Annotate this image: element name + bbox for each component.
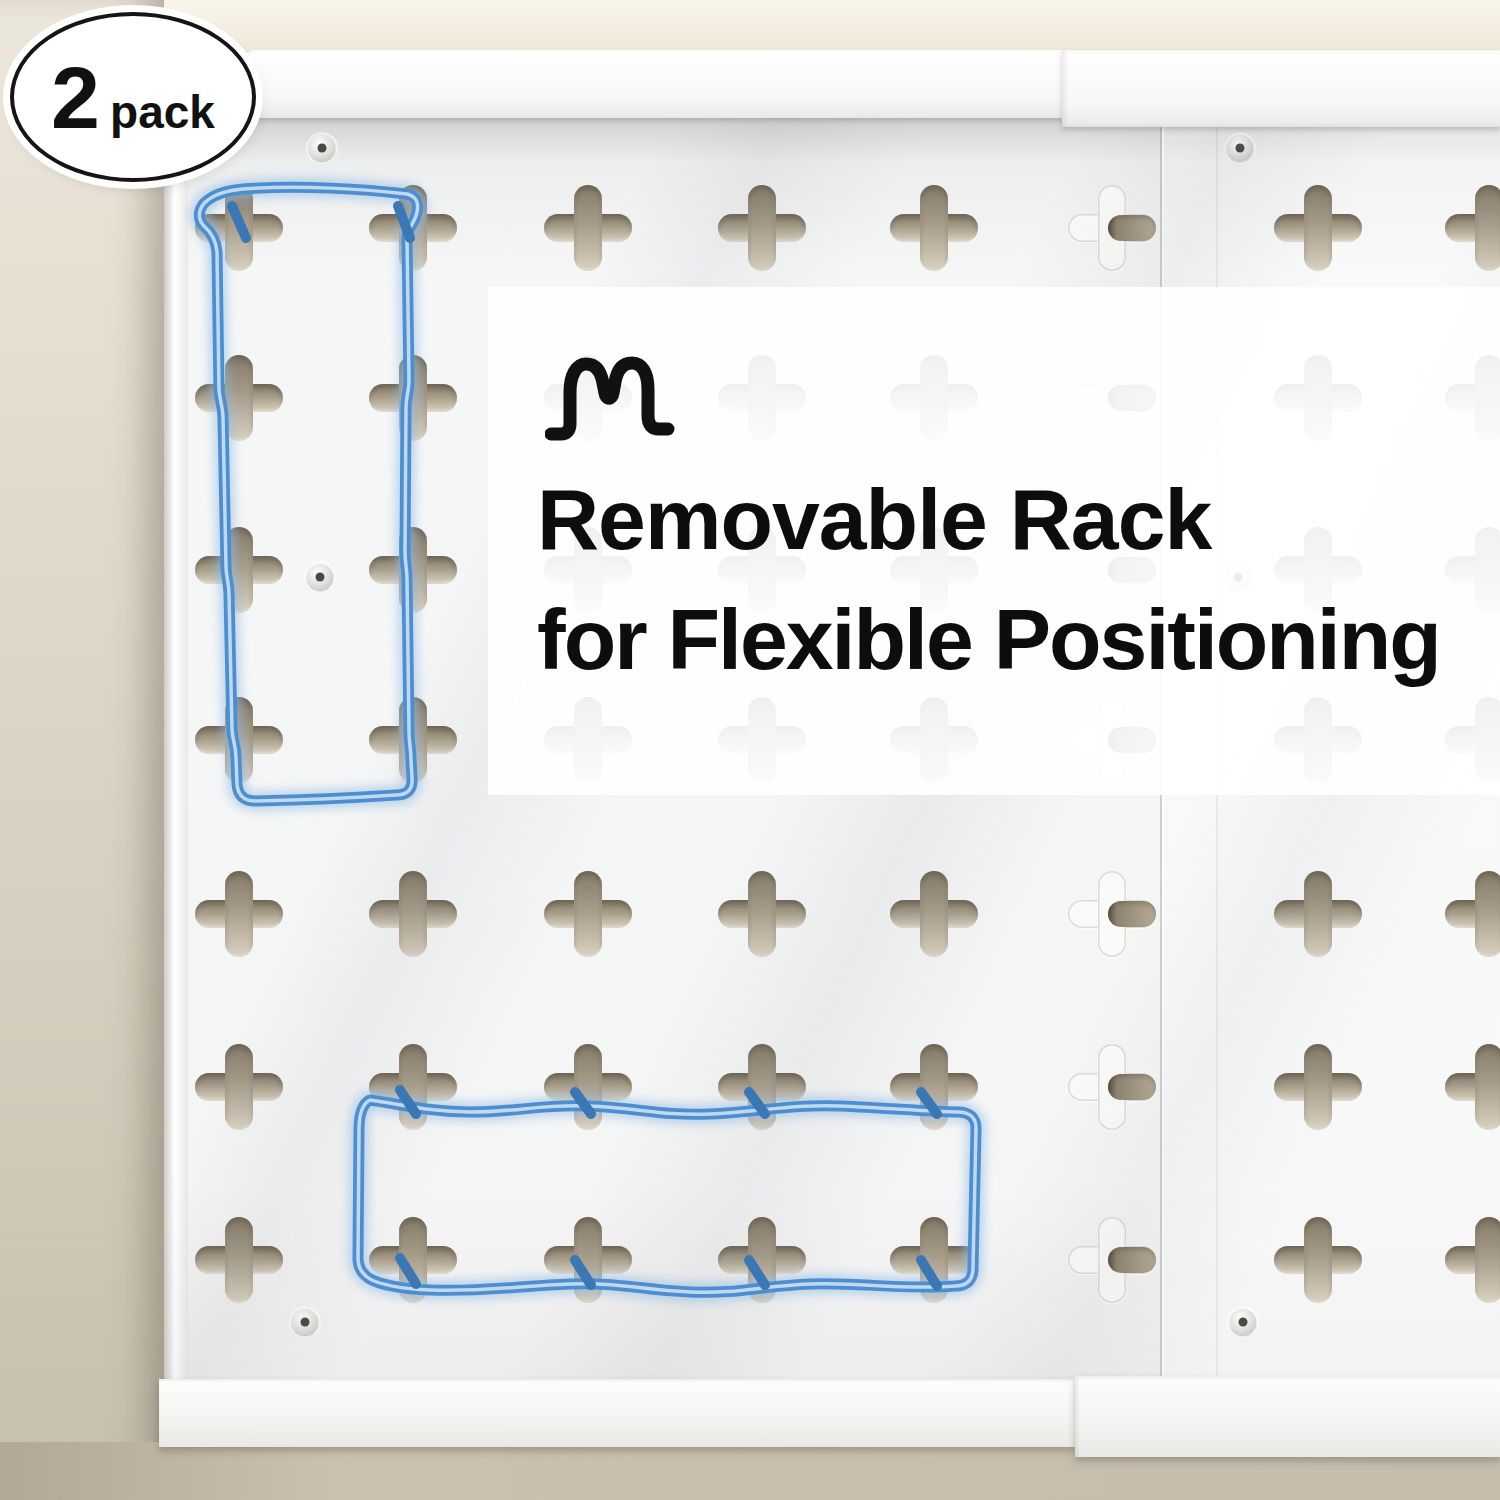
hook-mark <box>232 206 246 238</box>
horizontal-rack-outline <box>358 1090 976 1292</box>
vertical-rack-outline <box>199 187 417 801</box>
product-image: Removable Rack for Flexible Positioning <box>0 0 1500 1500</box>
pack-count-label: pack <box>110 89 215 135</box>
rack-position-outlines <box>0 0 1500 1500</box>
pack-count-number: 2 <box>51 54 100 142</box>
pack-count-badge: 2 pack <box>10 12 256 182</box>
